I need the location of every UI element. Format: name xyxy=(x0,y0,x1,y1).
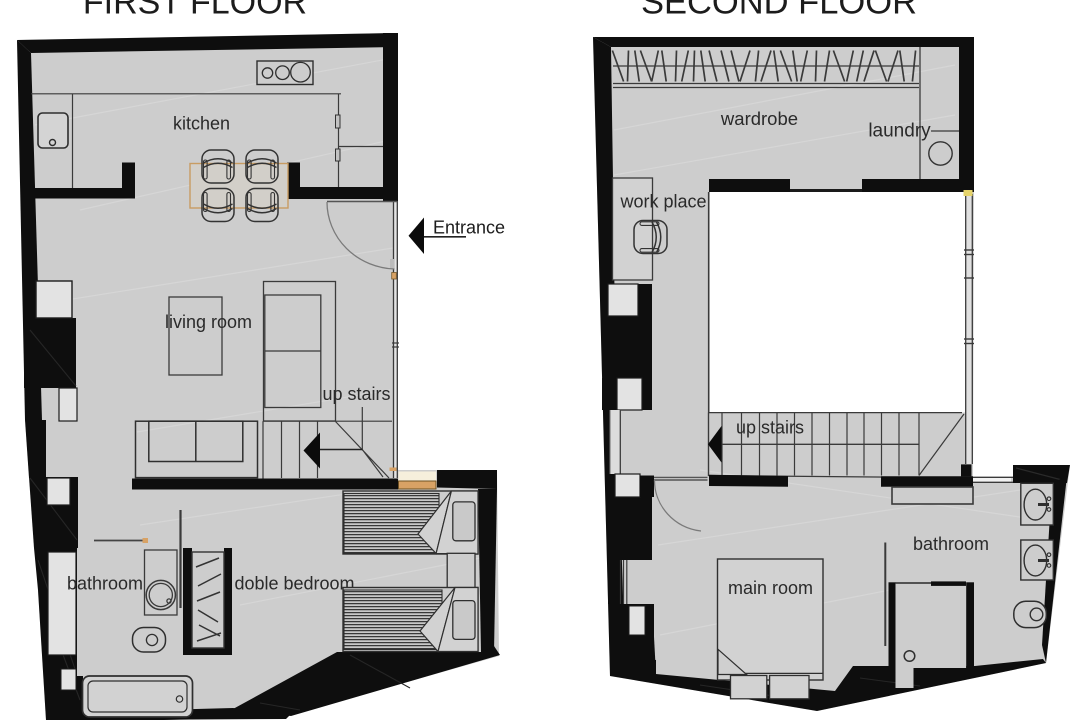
svg-text:main room: main room xyxy=(728,578,813,598)
svg-text:kitchen: kitchen xyxy=(173,114,230,134)
svg-text:living room: living room xyxy=(165,312,252,332)
svg-text:up stairs: up stairs xyxy=(322,384,390,404)
svg-text:wardrobe: wardrobe xyxy=(720,108,798,129)
svg-text:bathroom: bathroom xyxy=(913,534,989,554)
svg-text:doble bedroom: doble bedroom xyxy=(234,574,354,594)
svg-text:laundry: laundry xyxy=(868,121,931,142)
svg-text:FIRST FLOOR: FIRST FLOOR xyxy=(83,0,307,22)
svg-text:SECOND FLOOR: SECOND FLOOR xyxy=(641,0,917,22)
svg-text:up stairs: up stairs xyxy=(736,418,804,438)
svg-text:work place: work place xyxy=(619,192,706,212)
svg-text:Entrance: Entrance xyxy=(433,218,505,238)
svg-text:bathroom: bathroom xyxy=(67,574,143,594)
